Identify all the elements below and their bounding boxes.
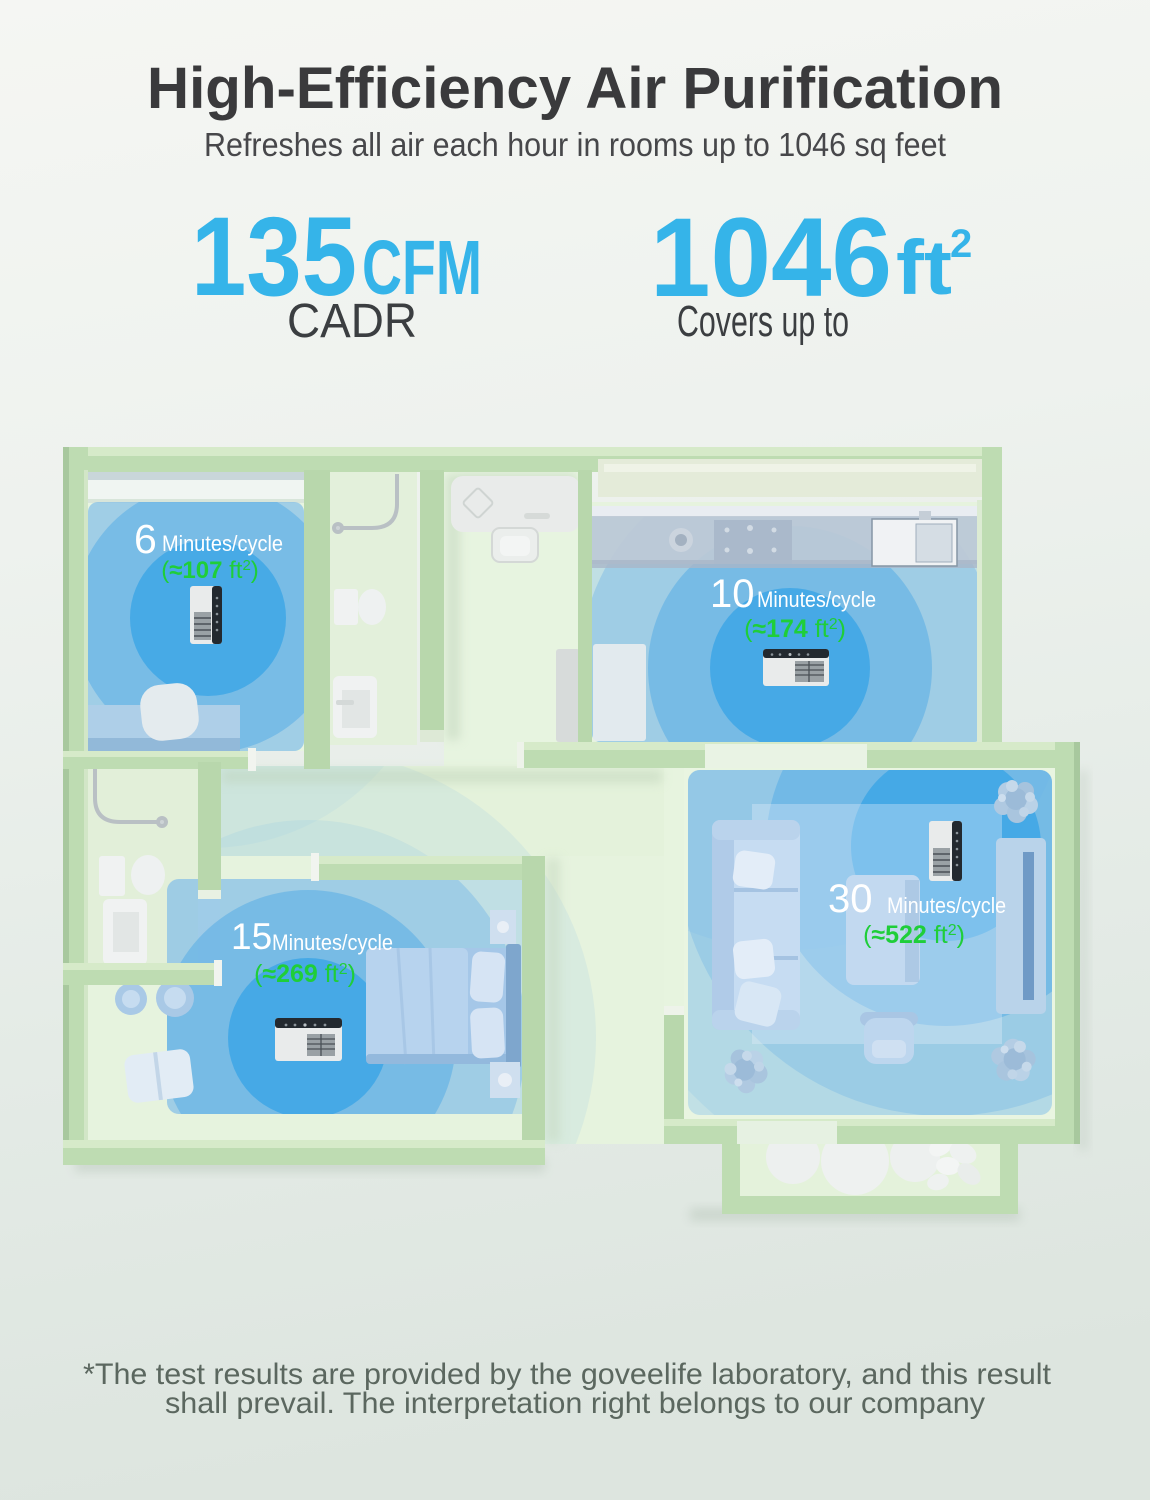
svg-text:Covers up to: Covers up to: [677, 297, 849, 346]
svg-text:CADR: CADR: [287, 295, 417, 348]
svg-text:Refreshes all air each hour in: Refreshes all air each hour in rooms up …: [204, 126, 946, 163]
svg-text:Minutes/cycle: Minutes/cycle: [272, 930, 393, 955]
svg-text:2: 2: [950, 222, 972, 266]
svg-text:30: 30: [828, 877, 873, 921]
svg-text:10: 10: [710, 572, 755, 616]
svg-text:shall prevail. The interpretat: shall prevail. The interpretation right …: [165, 1387, 985, 1420]
svg-text:6: 6: [134, 516, 157, 562]
svg-text:15: 15: [231, 916, 272, 957]
svg-text:Minutes/cycle: Minutes/cycle: [162, 531, 283, 556]
svg-text:Minutes/cycle: Minutes/cycle: [757, 587, 876, 612]
svg-text:ft: ft: [896, 225, 952, 311]
svg-text:High-Efficiency Air Purificati: High-Efficiency Air Purification: [147, 56, 1003, 121]
svg-text:Minutes/cycle: Minutes/cycle: [887, 893, 1006, 918]
